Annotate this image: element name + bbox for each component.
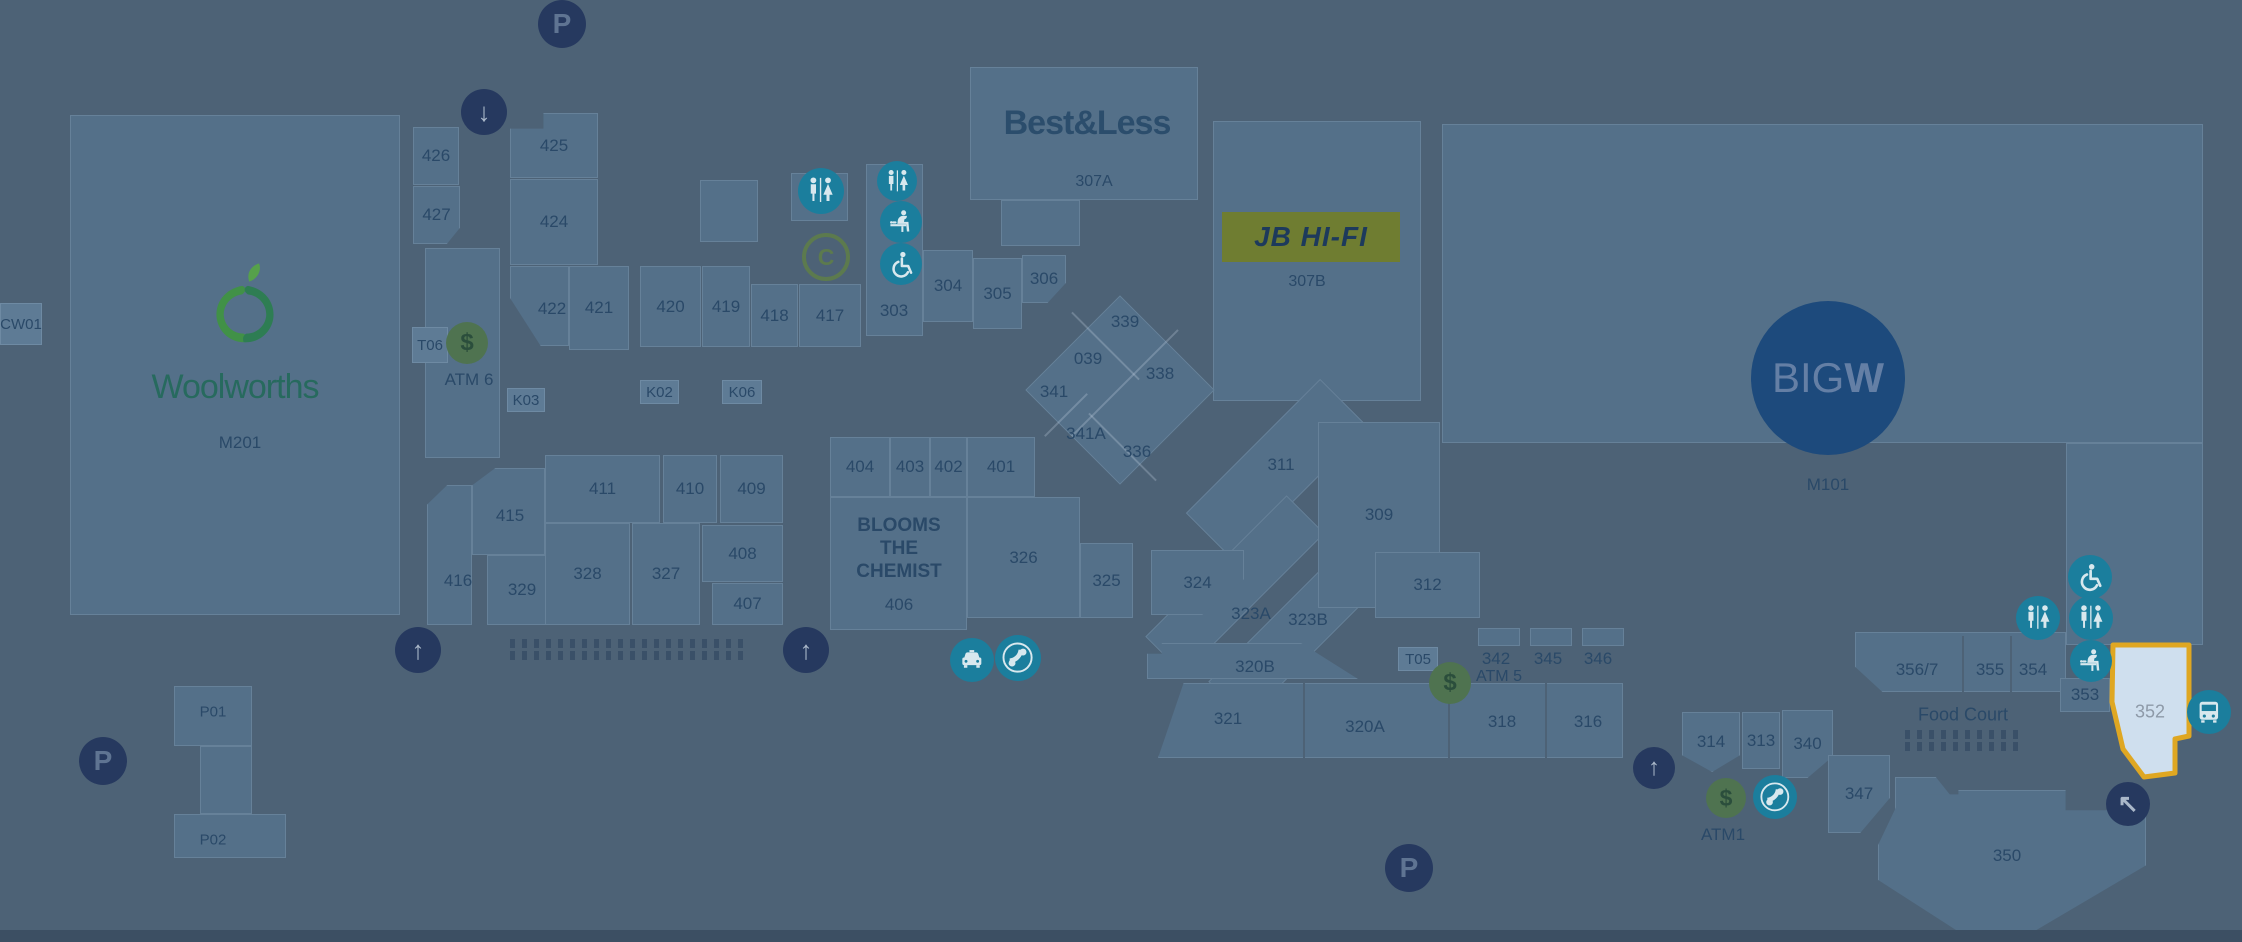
store-label: 325 <box>1092 571 1120 591</box>
store-421[interactable]: 421 <box>569 266 629 350</box>
store-label: 305 <box>983 284 1011 304</box>
parents-icon <box>2070 640 2112 682</box>
map-bottom-edge <box>0 930 2242 942</box>
store-label-406[interactable]: 406 <box>885 595 913 615</box>
phone-icon <box>1753 775 1797 819</box>
store-label-320B[interactable]: 320B <box>1235 657 1275 677</box>
facility-label-food-court: Food Court <box>1918 705 2008 726</box>
arrow-up-glyph: ↑ <box>800 635 813 666</box>
store-418[interactable]: 418 <box>751 284 798 347</box>
c-ring-icon: C <box>802 233 850 281</box>
store-419[interactable]: 419 <box>702 266 750 347</box>
store-label-341[interactable]: 341 <box>1040 382 1068 402</box>
kiosk-label: T05 <box>1405 651 1431 668</box>
kiosk-K06[interactable]: K06 <box>722 380 762 404</box>
store-label: 340 <box>1793 734 1821 754</box>
parking-icon: P <box>538 0 586 48</box>
store-label: 402 <box>934 457 962 477</box>
store-label: 420 <box>656 297 684 317</box>
kiosk-label: K03 <box>513 392 540 409</box>
kiosk-label: CW01 <box>0 316 42 333</box>
store-label: 347 <box>1845 784 1873 804</box>
arrow-up-icon: ↑ <box>1633 747 1675 789</box>
store-label-354[interactable]: 354 <box>2019 660 2047 680</box>
store-label: 327 <box>652 564 680 584</box>
store-404[interactable]: 404 <box>830 437 890 497</box>
parking-icon: P <box>1385 844 1433 892</box>
store-label-416[interactable]: 416 <box>444 571 472 591</box>
store-label-320A[interactable]: 320A <box>1345 717 1385 737</box>
store-label: 425 <box>540 136 568 156</box>
store-427[interactable]: 427 <box>413 186 460 244</box>
store-box-a <box>700 180 758 242</box>
arrow-upleft-glyph: ↖ <box>2118 789 2139 819</box>
facility-label-atm-6: ATM 6 <box>445 370 494 390</box>
store-label-422[interactable]: 422 <box>538 299 566 319</box>
store-bestless-tab <box>1001 200 1080 246</box>
store-label: 409 <box>737 479 765 499</box>
store-312[interactable]: 312 <box>1375 552 1480 618</box>
woolworths-apple-logo-icon <box>197 262 293 366</box>
store-label-350[interactable]: 350 <box>1993 846 2021 866</box>
store-304[interactable]: 304 <box>923 250 973 322</box>
blooms-label-line: THE <box>830 537 968 560</box>
restroom-icon <box>798 168 844 214</box>
kiosk-K03[interactable]: K03 <box>507 388 545 412</box>
store-label: 314 <box>1697 732 1725 752</box>
store-411[interactable]: 411 <box>545 455 660 523</box>
facility-label-m101: M101 <box>1807 475 1850 495</box>
kiosk-T05[interactable]: T05 <box>1398 647 1438 671</box>
store-label-342[interactable]: 342 <box>1482 649 1510 669</box>
woolworths-label: Woolworths <box>70 368 400 407</box>
store-label-355[interactable]: 355 <box>1976 660 2004 680</box>
store-326[interactable]: 326 <box>967 497 1080 618</box>
mall-map: Woolworths Best&Less JB HI-FI BIGW BLOOM… <box>0 0 2242 942</box>
atm-glyph: $ <box>1720 785 1733 812</box>
store-blooms-the-chemist[interactable]: BLOOMSTHECHEMIST <box>830 514 968 583</box>
store-label: 417 <box>816 306 844 326</box>
store-410[interactable]: 410 <box>663 455 717 523</box>
arrow-down-icon: ↓ <box>461 89 507 135</box>
seating-pattern <box>510 636 743 660</box>
store-label: 312 <box>1413 575 1441 595</box>
store-label: 424 <box>540 212 568 232</box>
atm-icon: $ <box>446 322 488 364</box>
kiosk-label: K06 <box>729 384 756 401</box>
store-mini-346 <box>1582 628 1624 646</box>
store-label-323A[interactable]: 323A <box>1231 604 1271 624</box>
c-ring-glyph: C <box>818 244 835 271</box>
store-313[interactable]: 313 <box>1742 712 1780 769</box>
store-mini-342 <box>1478 628 1520 646</box>
store-divider <box>1303 683 1305 758</box>
arrow-up-icon: ↑ <box>395 627 441 673</box>
kiosk-CW01[interactable]: CW01 <box>0 303 42 345</box>
store-403[interactable]: 403 <box>890 437 930 497</box>
store-label: 404 <box>846 457 874 477</box>
arrow-down-glyph: ↓ <box>478 97 491 128</box>
arrow-upleft-icon: ↖ <box>2106 782 2150 826</box>
store-label: 427 <box>422 205 450 225</box>
parking-glyph: P <box>553 8 572 40</box>
store-p-zone-bottom <box>174 814 286 858</box>
store-label: 421 <box>585 298 613 318</box>
store-label-311[interactable]: 311 <box>1267 455 1294 475</box>
parking-glyph: P <box>1400 852 1419 884</box>
store-label-316[interactable]: 316 <box>1574 712 1602 732</box>
atm-glyph: $ <box>1443 669 1456 697</box>
store-label-345[interactable]: 345 <box>1534 649 1562 669</box>
store-mini-345 <box>1530 628 1572 646</box>
wheelchair-icon <box>880 243 922 285</box>
store-425[interactable]: 425 <box>510 113 598 178</box>
store-label-346[interactable]: 346 <box>1584 649 1612 669</box>
atm-glyph: $ <box>460 329 473 357</box>
facility-label-atm-5: ATM 5 <box>1476 668 1522 686</box>
store-label: 353 <box>2071 685 2099 705</box>
restroom-icon <box>2069 596 2113 640</box>
facility-label-p01: P01 <box>200 704 227 721</box>
store-353[interactable]: 353 <box>2060 678 2110 712</box>
store-label: 408 <box>728 544 756 564</box>
store-424[interactable]: 424 <box>510 179 598 265</box>
store-label-323B[interactable]: 323B <box>1288 610 1328 630</box>
parking-glyph: P <box>94 745 113 777</box>
arrow-up-glyph: ↑ <box>412 635 425 666</box>
store-347[interactable]: 347 <box>1828 755 1890 833</box>
store-jb-hifi[interactable]: JB HI-FI <box>1222 212 1400 262</box>
store-label: 410 <box>676 479 704 499</box>
store-407[interactable]: 407 <box>712 583 783 625</box>
taxi-icon <box>950 638 994 682</box>
store-label-356-7[interactable]: 356/7 <box>1896 660 1939 680</box>
store-340[interactable]: 340 <box>1782 710 1833 778</box>
bus-icon <box>2187 690 2231 734</box>
store-409[interactable]: 409 <box>720 455 783 523</box>
store-426[interactable]: 426 <box>413 127 459 185</box>
facility-label-atm1: ATM1 <box>1701 825 1745 845</box>
store-label-303[interactable]: 303 <box>880 301 908 321</box>
restroom-icon <box>877 161 917 201</box>
facility-label-p02: P02 <box>200 832 227 849</box>
store-label: 329 <box>508 580 536 600</box>
store-402[interactable]: 402 <box>930 437 967 497</box>
store-label-321[interactable]: 321 <box>1214 709 1242 729</box>
store-label-336[interactable]: 336 <box>1123 442 1151 462</box>
store-best-and-less[interactable]: Best&Less <box>960 104 1214 143</box>
facility-label-m201: M201 <box>219 433 262 453</box>
arrow-up-icon: ↑ <box>783 627 829 673</box>
blooms-label-line: CHEMIST <box>830 560 968 583</box>
store-label-039[interactable]: 039 <box>1074 349 1102 369</box>
store-divider <box>1545 683 1547 758</box>
kiosk-label: K02 <box>646 384 673 401</box>
facility-label-307a: 307A <box>1075 173 1112 191</box>
store-label: 426 <box>422 146 450 166</box>
store-big-w[interactable]: BIGW <box>1751 301 1905 455</box>
store-417[interactable]: 417 <box>799 284 861 347</box>
store-label-339[interactable]: 339 <box>1111 312 1139 332</box>
store-420[interactable]: 420 <box>640 266 701 347</box>
store-area-416 <box>427 485 472 625</box>
store-label-318[interactable]: 318 <box>1488 712 1516 732</box>
store-label: 328 <box>573 564 601 584</box>
store-305[interactable]: 305 <box>973 258 1022 329</box>
atm-icon: $ <box>1706 778 1746 818</box>
store-p-zone-stem <box>200 746 252 814</box>
store-label: 324 <box>1183 573 1211 593</box>
kiosk-label: T06 <box>417 337 443 354</box>
store-label: 419 <box>712 297 740 317</box>
store-label: 401 <box>987 457 1015 477</box>
store-label-415[interactable]: 415 <box>496 506 524 526</box>
store-label: 309 <box>1365 505 1393 525</box>
blooms-label-line: BLOOMS <box>830 514 968 537</box>
atm-icon: $ <box>1429 662 1471 704</box>
kiosk-K02[interactable]: K02 <box>640 380 679 404</box>
store-label: 418 <box>760 306 788 326</box>
store-327[interactable]: 327 <box>632 523 700 625</box>
store-woolworths[interactable]: Woolworths <box>70 115 400 615</box>
store-401[interactable]: 401 <box>967 437 1035 497</box>
store-325[interactable]: 325 <box>1080 543 1133 618</box>
store-label: 304 <box>934 276 962 296</box>
kiosk-T06[interactable]: T06 <box>412 327 448 363</box>
facility-label-307b: 307B <box>1288 273 1325 291</box>
parents-icon <box>880 201 922 243</box>
arrow-up-glyph: ↑ <box>1648 754 1660 782</box>
store-408[interactable]: 408 <box>702 525 783 582</box>
store-label: 411 <box>589 479 616 499</box>
store-306[interactable]: 306 <box>1022 255 1066 303</box>
store-label-338[interactable]: 338 <box>1146 364 1174 384</box>
restroom-icon <box>2016 596 2060 640</box>
store-314[interactable]: 314 <box>1682 712 1740 772</box>
store-label-352[interactable]: 352 <box>2135 702 2165 723</box>
store-label: 407 <box>733 594 761 614</box>
parking-icon: P <box>79 737 127 785</box>
store-label-341A[interactable]: 341A <box>1066 424 1106 444</box>
store-divider <box>1962 636 1964 692</box>
seating-pattern <box>1905 727 2018 751</box>
store-label: 403 <box>896 457 924 477</box>
store-328[interactable]: 328 <box>545 523 630 625</box>
store-label: 306 <box>1030 269 1058 289</box>
wheelchair-icon <box>2068 555 2112 599</box>
store-label: 313 <box>1747 731 1775 751</box>
store-label: 326 <box>1009 548 1037 568</box>
phone-icon <box>995 635 1041 681</box>
store-divider <box>2010 636 2012 692</box>
